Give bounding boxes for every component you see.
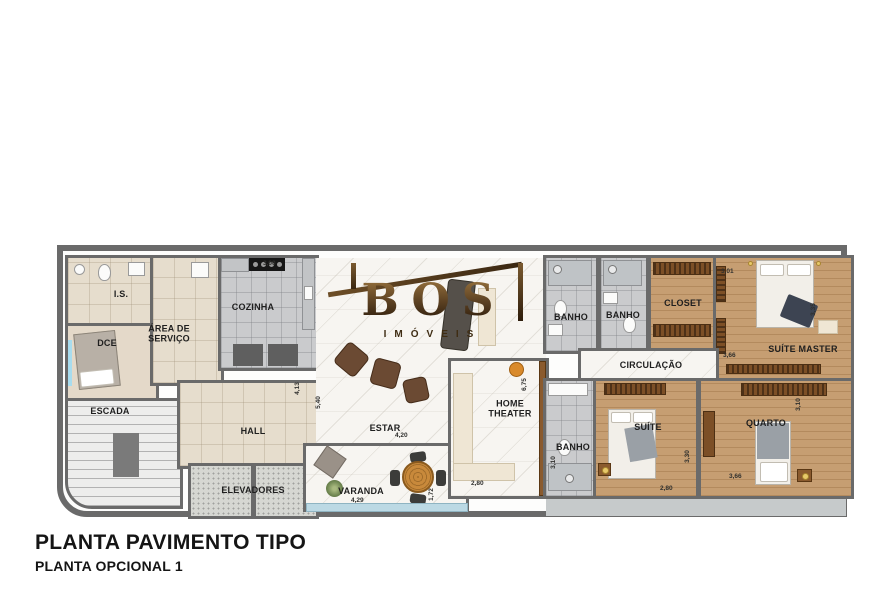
varanda-railing (306, 503, 468, 512)
room-banho-floor (601, 258, 646, 351)
dimension-varanda-width: 4,29 (351, 497, 364, 504)
logo-tagline: IMÓVEIS (376, 329, 482, 340)
room-cozinha-floor (221, 258, 316, 368)
dimension-quarto-width: 3,66 (729, 473, 742, 480)
bidet (74, 264, 85, 275)
logo-brand: BOS (351, 279, 505, 323)
dimension-suite-master-inner: 3,66 (723, 352, 736, 359)
sink (548, 324, 563, 336)
room-label-suite-master: SUÍTE MASTER (768, 344, 837, 354)
room-label-banho: BANHO (556, 442, 590, 452)
sectional-sofa (453, 463, 515, 481)
bench (818, 320, 838, 334)
room-label-hall: HALL (241, 426, 266, 436)
chair (390, 470, 400, 486)
room-label-banho: BANHO (554, 312, 588, 322)
dimension-banho-depth: 3,10 (550, 456, 557, 469)
room-label-escada: ESCADA (90, 406, 129, 416)
room-quarto-floor (701, 381, 851, 496)
bos-imoveis-logo: BOS IMÓVEIS (321, 253, 536, 355)
wardrobe (653, 324, 711, 337)
sink (603, 292, 618, 304)
pouf (509, 362, 524, 377)
floor-cushion (313, 445, 346, 478)
room-label-suite: SUÍTE (634, 422, 662, 432)
rear-balcony (546, 496, 846, 516)
nightstand (797, 469, 812, 482)
shower-box (603, 260, 642, 286)
dimension-cozinha-width: 3,00 (263, 260, 276, 267)
toilet (98, 264, 111, 281)
room-hall-floor (180, 383, 316, 466)
dimension-quarto-depth: 3,10 (795, 398, 802, 411)
room-suite-master-floor (716, 258, 851, 383)
dresser (726, 364, 821, 374)
dimension-suite-depth: 3,30 (684, 450, 691, 463)
desk (703, 411, 715, 457)
bed-single (755, 421, 791, 485)
shower-box (548, 260, 592, 286)
sink (128, 262, 145, 276)
wardrobe (741, 383, 827, 396)
room-label-closet: CLOSET (664, 298, 702, 308)
floor-plan: BOS IMÓVEIS I.S. DCE ÁREA DE SERVIÇO COZ… (57, 245, 847, 517)
stair-landing (113, 433, 139, 477)
dimension-suite-width: 2,80 (660, 485, 673, 492)
room-label-home-theater: HOME THEATER (480, 399, 540, 420)
wall-sconce (748, 261, 753, 266)
room-label-is: I.S. (114, 289, 128, 299)
room-banho-floor (546, 381, 596, 496)
chair (436, 470, 446, 486)
room-suite-floor (596, 381, 696, 496)
room-is-floor (68, 258, 153, 326)
dimension-estar-depth: 5,40 (315, 396, 322, 409)
room-area-servico-floor (153, 258, 221, 383)
room-label-quarto: QUARTO (746, 418, 786, 428)
laundry-sink (191, 262, 209, 278)
room-varanda-floor (306, 446, 466, 509)
page-title: PLANTA PAVIMENTO TIPO (35, 531, 306, 555)
dimension-estar-width: 4,20 (395, 432, 408, 439)
wardrobe (653, 262, 711, 275)
armchair (369, 357, 402, 390)
nightstand (598, 463, 611, 476)
kitchen-sink (304, 286, 313, 300)
room-label-dce: DCE (97, 338, 117, 348)
window-glass (68, 340, 72, 386)
dimension-cozinha-depth: 4,13 (294, 382, 301, 395)
room-label-circulacao: CIRCULAÇÃO (620, 360, 683, 370)
page-subtitle: PLANTA OPCIONAL 1 (35, 558, 306, 574)
room-label-varanda: VARANDA (338, 486, 384, 496)
room-label-banho: BANHO (606, 310, 640, 320)
bed-double (608, 409, 656, 479)
room-label-area-servico: ÁREA DE SERVIÇO (139, 324, 199, 345)
kitchen-counter (221, 258, 249, 272)
island-unit (268, 344, 298, 366)
sectional-sofa (453, 373, 473, 469)
room-escada-floor (68, 401, 180, 506)
wardrobe (716, 318, 726, 354)
dimension-home-theater-depth: 6,75 (521, 378, 528, 391)
dimension-home-theater-width: 2,80 (471, 480, 484, 487)
armchair (402, 376, 430, 404)
room-home-theater-floor (451, 361, 546, 496)
room-banho-floor (546, 258, 596, 351)
tv-panel-wall (539, 361, 546, 496)
title-block: PLANTA PAVIMENTO TIPO PLANTA OPCIONAL 1 (35, 531, 306, 574)
dimension-varanda-depth: 1,72 (428, 488, 435, 501)
logo-edge (518, 263, 523, 321)
dimension-suite-master-width: 3,01 (721, 268, 734, 275)
room-label-cozinha: COZINHA (232, 302, 274, 312)
bed-double (756, 260, 814, 328)
wardrobe (604, 383, 666, 395)
wall-sconce (816, 261, 821, 266)
island-unit (233, 344, 263, 366)
vanity-counter (548, 383, 588, 396)
dimension-suite-master-depth: 3,35 (810, 303, 817, 316)
room-label-elevadores: ELEVADORES (221, 485, 284, 495)
